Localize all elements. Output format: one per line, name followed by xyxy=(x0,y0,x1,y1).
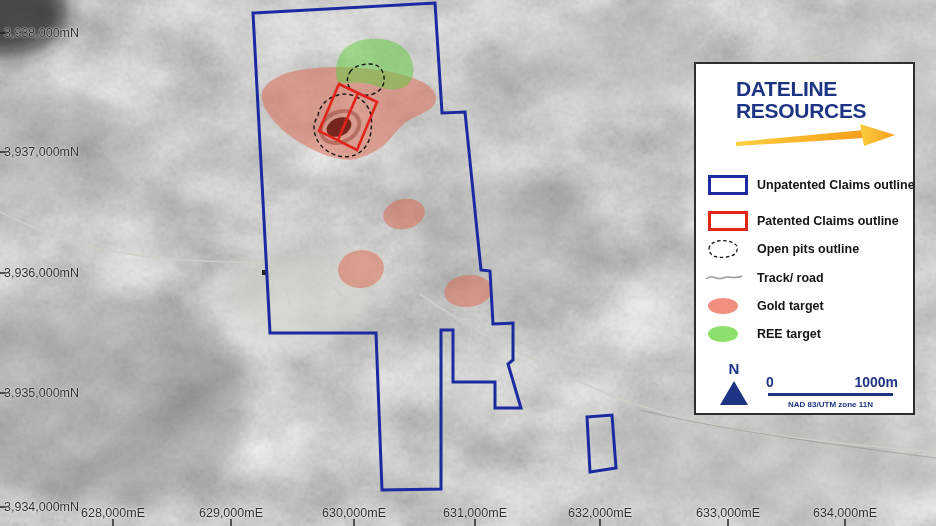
mining-claims-map: 3,938,000mN 3,937,000mN 3,936,000mN 3,93… xyxy=(0,0,936,526)
legend-item-label: Unpatented Claims outline xyxy=(757,178,915,192)
easting-label: 630,000mE xyxy=(322,506,386,520)
easting-label: 633,000mE xyxy=(696,506,760,520)
unpatented-claims-swatch-icon xyxy=(708,175,748,195)
track-road-swatch-icon xyxy=(704,267,744,289)
ree-target-swatch-icon xyxy=(704,323,744,345)
legend-item-ree: REE target xyxy=(696,323,913,345)
legend-item-track: Track/ road xyxy=(696,267,913,289)
legend-item-label: REE target xyxy=(757,327,821,341)
easting-label: 631,000mE xyxy=(443,506,507,520)
gold-target-swatch-icon xyxy=(704,295,744,317)
patented-claims-swatch-icon xyxy=(708,211,748,231)
scale-bar-start: 0 xyxy=(766,374,774,390)
easting-label: 634,000mE xyxy=(813,506,877,520)
legend-item-unpatented: Unpatented Claims outline xyxy=(696,174,913,196)
scale-bar xyxy=(768,393,893,396)
easting-label: 632,000mE xyxy=(568,506,632,520)
open-pit-swatch-icon xyxy=(704,238,744,260)
northing-label: 3,934,000mN xyxy=(4,500,79,514)
legend-item-patented: Patented Claims outline xyxy=(696,210,913,232)
easting-label: 629,000mE xyxy=(199,506,263,520)
logo-arrow-icon xyxy=(726,116,906,156)
legend-item-label: Open pits outline xyxy=(757,242,859,256)
scale-datum: NAD 83/UTM zone 11N xyxy=(758,400,903,409)
northing-label: 3,937,000mN xyxy=(4,145,79,159)
legend-item-open-pits: Open pits outline xyxy=(696,238,913,260)
easting-label: 628,000mE xyxy=(81,506,145,520)
legend-item-label: Track/ road xyxy=(757,271,824,285)
northing-label: 3,938,000mN xyxy=(4,26,79,40)
northing-label: 3,936,000mN xyxy=(4,266,79,280)
legend-item-gold: Gold target xyxy=(696,295,913,317)
north-label: N xyxy=(725,360,743,377)
legend-panel: DATELINE RESOURCES Unpatented Claims out… xyxy=(694,62,915,415)
logo-line-1: DATELINE xyxy=(736,78,866,100)
northing-label: 3,935,000mN xyxy=(4,386,79,400)
legend-item-label: Gold target xyxy=(757,299,824,313)
north-arrow-icon xyxy=(719,380,749,406)
scale-bar-end: 1000m xyxy=(848,374,898,390)
legend-item-label: Patented Claims outline xyxy=(757,214,899,228)
